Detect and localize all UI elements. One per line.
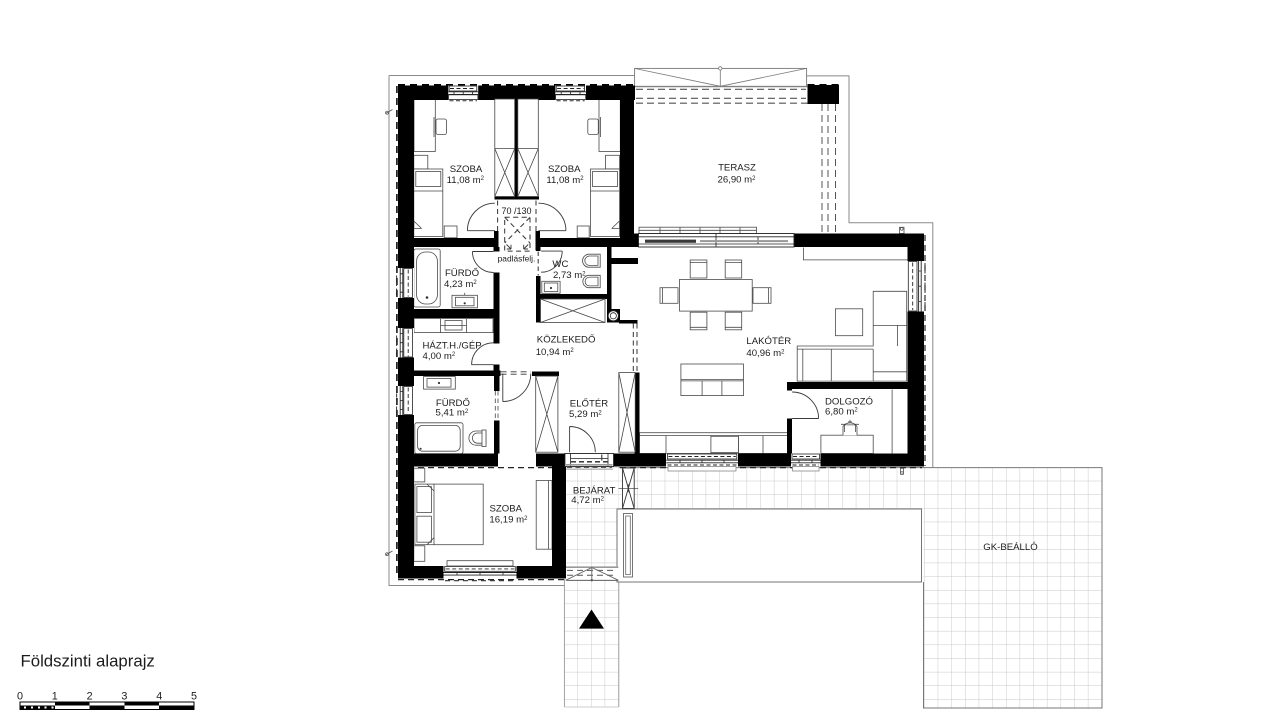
svg-text:11,08 m2: 11,08 m2	[447, 175, 485, 186]
svg-text:LAKÓTÉR: LAKÓTÉR	[746, 336, 791, 347]
svg-text:3: 3	[121, 691, 127, 703]
svg-text:KÖZLEKEDŐ: KÖZLEKEDŐ	[537, 335, 596, 346]
svg-text:SZOBA: SZOBA	[450, 164, 483, 175]
svg-text:4,72 m2: 4,72 m2	[571, 495, 604, 506]
svg-text:16,19 m2: 16,19 m2	[489, 515, 528, 526]
svg-text:FÜRDŐ: FÜRDŐ	[445, 268, 479, 279]
svg-text:TERASZ: TERASZ	[718, 162, 756, 173]
svg-text:2,73 m2: 2,73 m2	[553, 270, 586, 281]
svg-text:SZOBA: SZOBA	[490, 504, 523, 515]
svg-text:5,29 m2: 5,29 m2	[569, 409, 602, 420]
svg-text:SZOBA: SZOBA	[548, 164, 581, 175]
svg-text:WC: WC	[552, 259, 568, 270]
svg-text:11,08 m2: 11,08 m2	[546, 175, 584, 186]
svg-text:GK-BEÁLLÓ: GK-BEÁLLÓ	[983, 542, 1037, 553]
svg-text:6,80 m2: 6,80 m2	[825, 406, 858, 417]
svg-text:4: 4	[156, 691, 162, 703]
svg-text:4,23 m2: 4,23 m2	[444, 279, 477, 290]
svg-text:4,00 m2: 4,00 m2	[423, 351, 456, 362]
svg-text:HÁZT.H./GÉP: HÁZT.H./GÉP	[423, 340, 482, 351]
svg-text:2: 2	[87, 691, 93, 703]
svg-text:Földszinti alaprajz: Földszinti alaprajz	[21, 652, 155, 671]
svg-text:padlásfelj.: padlásfelj.	[498, 253, 536, 263]
svg-text:ELŐTÉR: ELŐTÉR	[570, 398, 608, 409]
svg-text:5,41 m2: 5,41 m2	[436, 408, 469, 419]
svg-text:0: 0	[17, 691, 23, 703]
svg-text:40,96 m2: 40,96 m2	[746, 348, 785, 359]
svg-text:5: 5	[191, 691, 197, 703]
svg-text:1: 1	[52, 691, 58, 703]
svg-text:70 /130: 70 /130	[501, 206, 531, 216]
svg-text:10,94 m2: 10,94 m2	[536, 347, 575, 358]
svg-text:26,90 m2: 26,90 m2	[717, 175, 756, 186]
